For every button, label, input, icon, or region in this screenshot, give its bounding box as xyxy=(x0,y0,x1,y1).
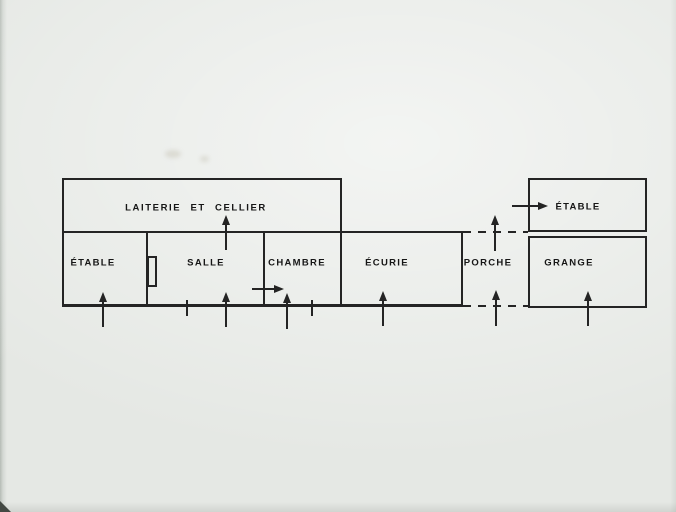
arrow-head-icon xyxy=(491,215,499,225)
arrow-head-icon xyxy=(492,290,500,300)
room-label-etable-west: ÉTABLE xyxy=(70,258,115,269)
room-label-chambre: CHAMBRE xyxy=(268,258,326,269)
floor-plan-photo: LAITERIE ET CELLIER ÉTABLE SALLE CHAMBRE… xyxy=(0,0,676,512)
arrow-head-icon xyxy=(283,293,291,303)
page-corner-shadow xyxy=(0,501,11,512)
room-label-laiterie-cellier: LAITERIE ET CELLIER xyxy=(125,203,267,214)
arrow-shaft xyxy=(286,303,288,329)
paper-smudge xyxy=(200,156,209,162)
arrow-head-icon xyxy=(538,202,548,210)
wall-ecurie-top xyxy=(341,231,463,233)
arrow-shaft xyxy=(382,301,384,326)
opening-tick-salle xyxy=(186,300,188,316)
room-label-etable-north: ÉTABLE xyxy=(555,202,600,213)
arrow-shaft xyxy=(512,205,538,207)
paper-smudge xyxy=(165,150,181,158)
door-arrow-salle-to-laiterie xyxy=(221,215,231,250)
room-label-salle: SALLE xyxy=(187,258,225,269)
arrow-head-icon xyxy=(379,291,387,301)
opening-tick-chambre xyxy=(311,300,313,316)
arrow-shaft xyxy=(252,288,274,290)
arrow-shaft xyxy=(494,225,496,251)
arrow-shaft xyxy=(495,300,497,326)
entrance-arrow-chambre xyxy=(282,293,292,329)
entrance-arrow-grange xyxy=(583,291,593,326)
arrow-shaft xyxy=(587,301,589,326)
arrow-shaft xyxy=(225,302,227,327)
entrance-arrow-etable-west xyxy=(98,292,108,327)
entrance-arrow-porche-north xyxy=(490,215,500,251)
arrow-head-icon xyxy=(99,292,107,302)
room-label-ecurie: ÉCURIE xyxy=(365,258,409,269)
room-label-porche: PORCHE xyxy=(464,258,512,269)
entrance-arrow-salle xyxy=(221,292,231,327)
arrow-head-icon xyxy=(584,291,592,301)
arrow-head-icon xyxy=(222,292,230,302)
arrow-shaft xyxy=(102,302,104,327)
door-arrow-porche-to-etable-north xyxy=(512,201,548,211)
wall-chambre-ecurie xyxy=(340,231,342,307)
arrow-shaft xyxy=(225,225,227,250)
entrance-arrow-porche-south xyxy=(491,290,501,326)
fireplace xyxy=(147,256,157,287)
arrow-head-icon xyxy=(274,285,284,293)
door-arrow-salle-to-chambre xyxy=(252,284,284,294)
arrow-head-icon xyxy=(222,215,230,225)
wall-salle-chambre xyxy=(263,231,265,307)
room-label-grange: GRANGE xyxy=(544,258,594,269)
entrance-arrow-ecurie xyxy=(378,291,388,326)
